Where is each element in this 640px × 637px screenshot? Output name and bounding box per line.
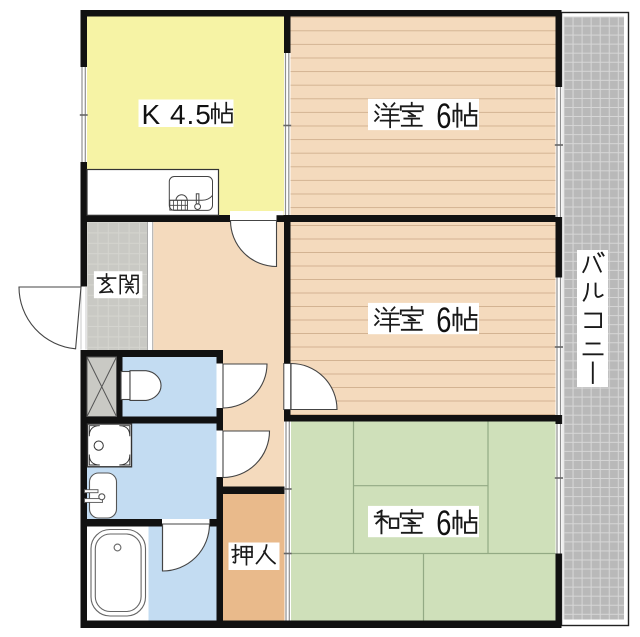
svg-text:K 4.5: K 4.5 [142, 99, 212, 130]
svg-text:6: 6 [436, 97, 451, 136]
svg-text:6: 6 [436, 504, 451, 543]
svg-text:6: 6 [436, 301, 451, 340]
